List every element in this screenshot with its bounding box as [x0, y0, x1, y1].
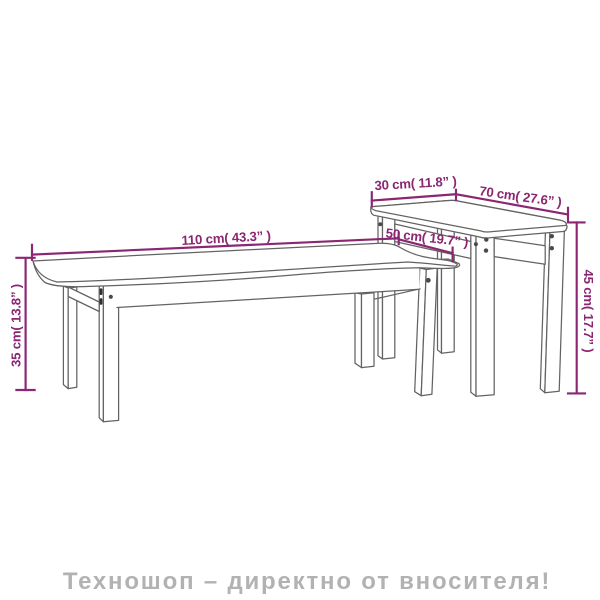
svg-text:30 cm( 11.8” ): 30 cm( 11.8” )	[374, 174, 457, 194]
svg-text:45 cm( 17.7” ): 45 cm( 17.7” )	[581, 270, 596, 353]
svg-text:35 cm( 13.8” ): 35 cm( 13.8” )	[9, 284, 24, 367]
